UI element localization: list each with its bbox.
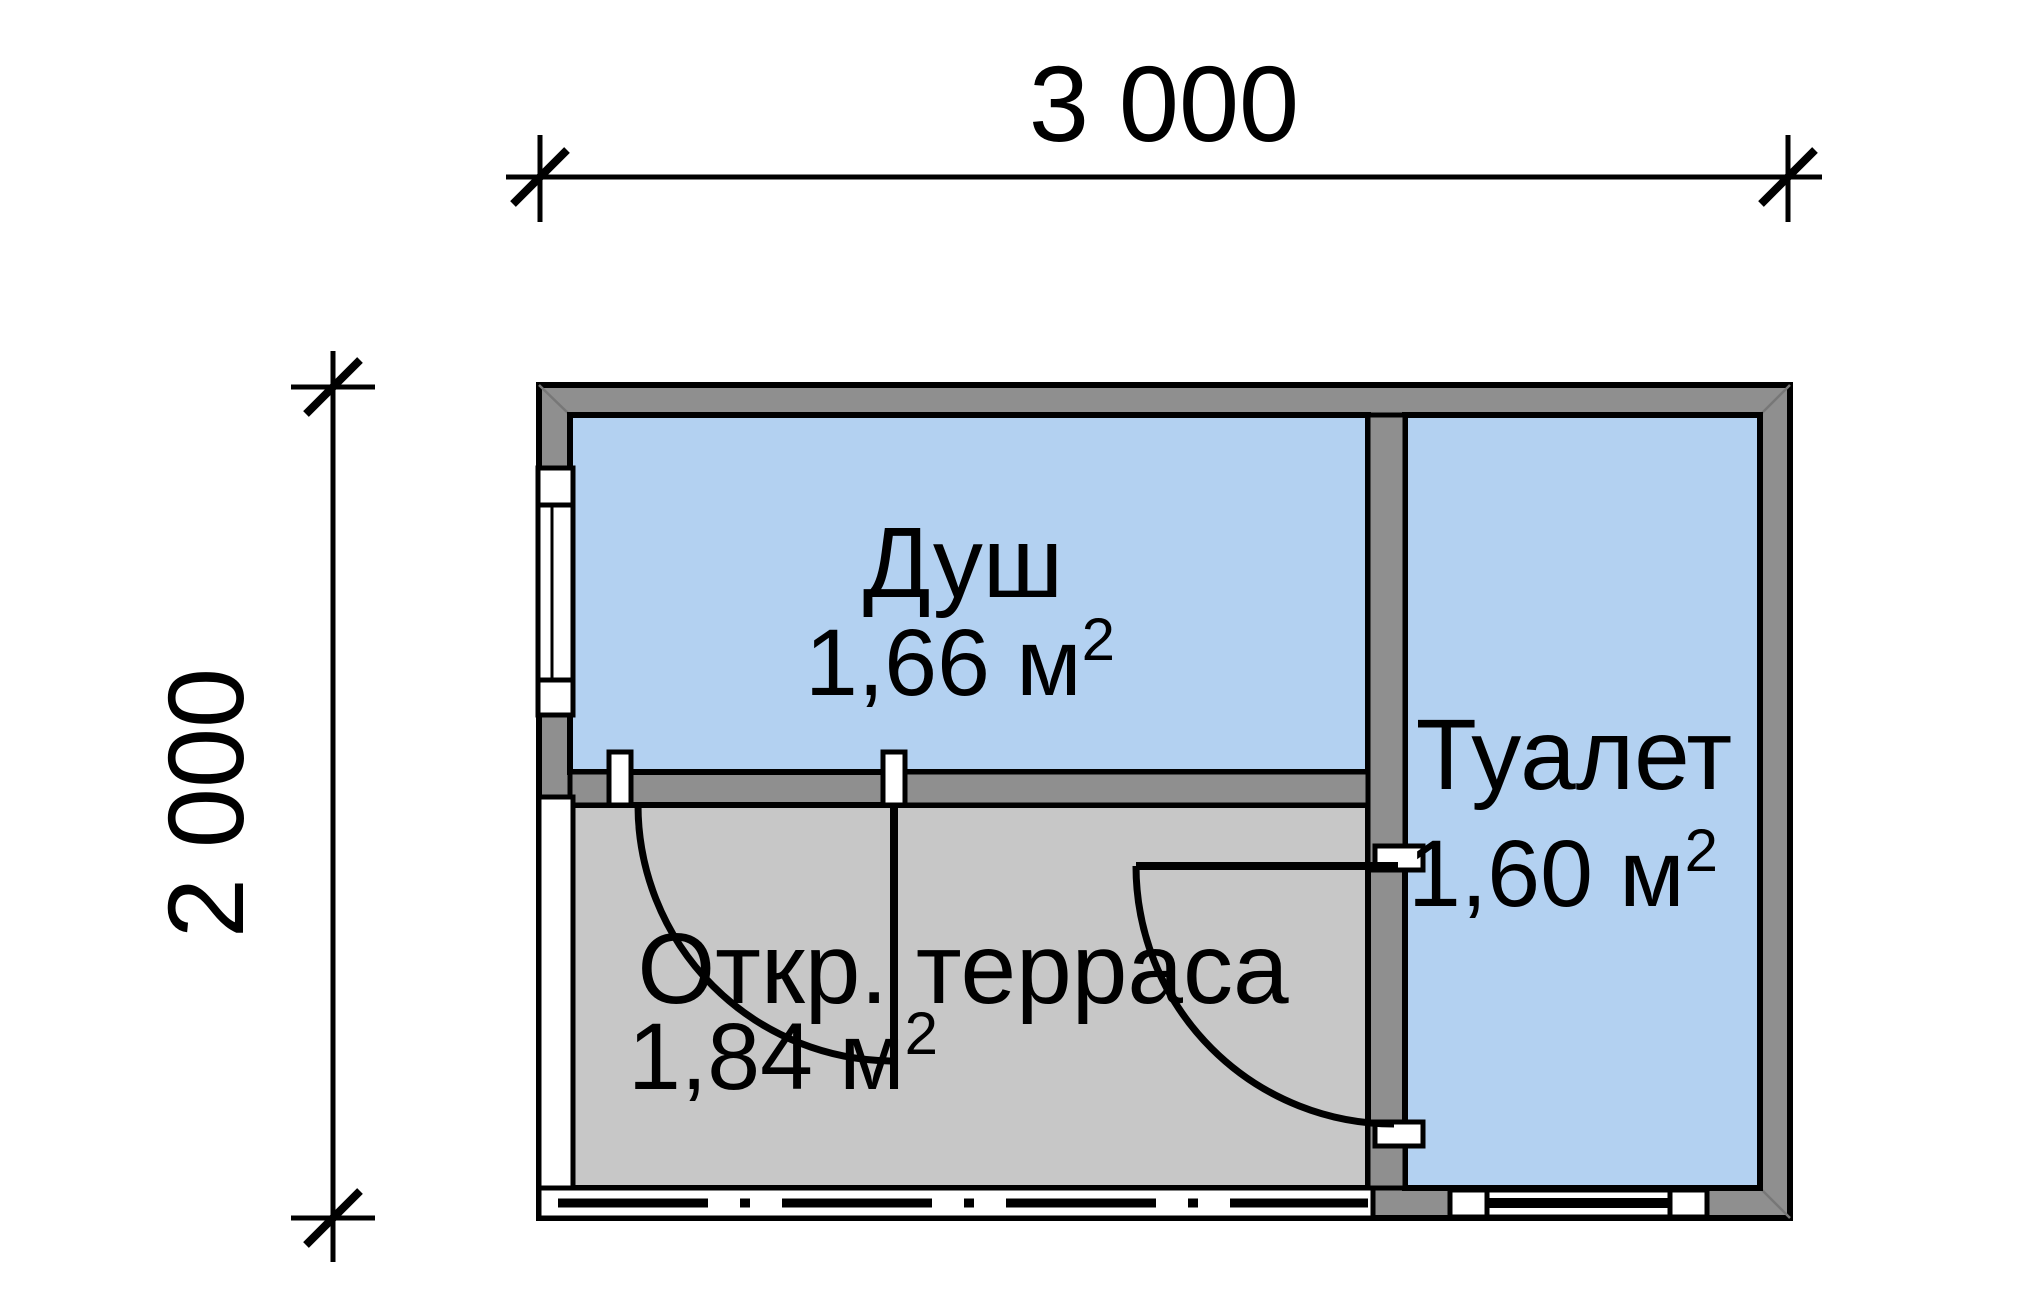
dimension-label-horizontal: 3 000	[1029, 43, 1299, 164]
terrace-area-superscript: 2	[905, 1000, 938, 1067]
toilet-area-value: 1,60 м	[1408, 821, 1685, 927]
window-toilet-bottom	[1450, 1190, 1707, 1217]
shower-room-area: 1,66 м2	[805, 606, 1115, 716]
shower-door-jamb-right	[883, 752, 905, 805]
window-left	[538, 468, 573, 715]
terrace-area: 1,84 м2	[628, 1000, 938, 1110]
shower-area-superscript: 2	[1082, 606, 1115, 673]
dimension-horizontal: 3 000	[506, 43, 1822, 222]
dimension-vertical: 2 000	[145, 351, 375, 1262]
shower-area-value: 1,66 м	[805, 610, 1082, 716]
interior-wall-vertical-upper	[1368, 415, 1405, 870]
terrace-area-value: 1,84 м	[628, 1004, 905, 1110]
dimension-label-vertical: 2 000	[145, 668, 266, 938]
shower-room-name: Душ	[863, 507, 1063, 619]
terrace-open-side-bottom	[539, 1188, 1373, 1218]
toilet-area-superscript: 2	[1685, 817, 1718, 884]
floor-plan-page: 3 000 2 000	[0, 0, 2033, 1308]
terrace-open-side-left	[539, 797, 573, 1188]
shower-door-jamb-left	[609, 752, 631, 805]
toilet-room-area: 1,60 м2	[1408, 817, 1718, 927]
toilet-room-name: Туалет	[1416, 699, 1732, 811]
interior-wall-horizontal-right	[885, 772, 1368, 805]
floor-plan-canvas: 3 000 2 000	[0, 0, 2033, 1308]
